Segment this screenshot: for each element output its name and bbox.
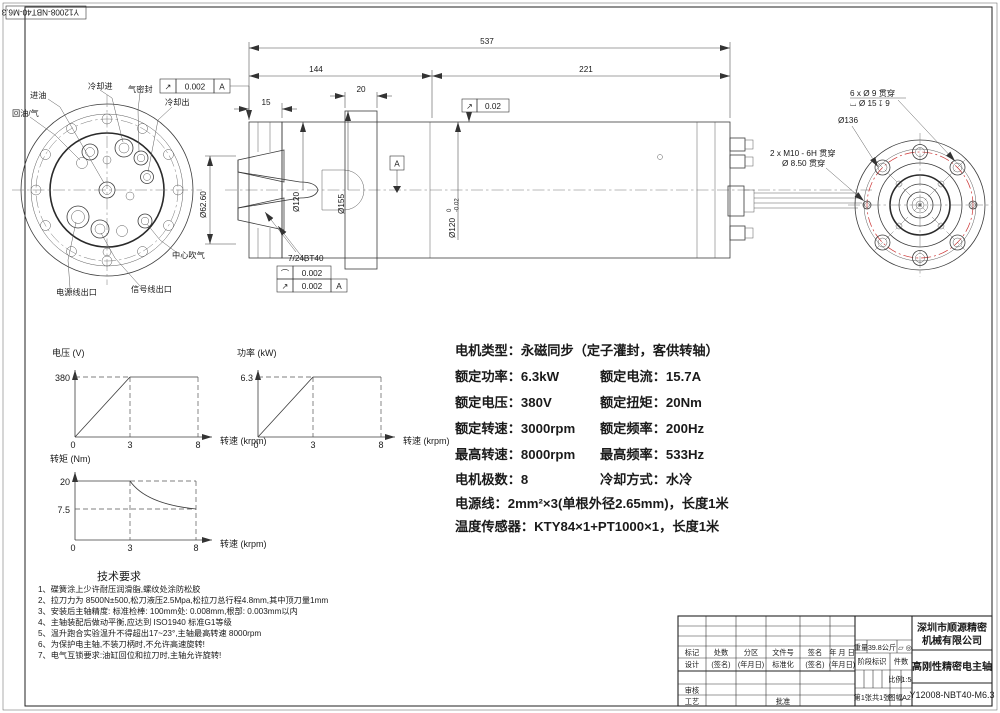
runout2-value: 0.02 (485, 102, 501, 111)
label-bolt-circle: Ø136 (838, 116, 858, 125)
chart2-ypeak: 6.3 (240, 373, 253, 383)
spec-frequency: 额定频率：200Hz (600, 420, 704, 436)
label-air-seal: 气密封 (128, 84, 153, 94)
stage-label: 阶段标识 (858, 657, 887, 666)
chart1-xtick0: 0 (70, 440, 75, 450)
spec-cooling: 冷却方式：水冷 (600, 471, 692, 487)
profile-symbol: ⌒ (281, 269, 289, 278)
front-ports (67, 139, 154, 256)
datum-a-label: A (394, 160, 400, 169)
th-mark: 标记 (685, 648, 699, 657)
dim-body-dia: Ø120 (292, 192, 301, 212)
product-title: 高刚性精密电主轴 (912, 660, 992, 673)
runout-symbol: ↗ (165, 83, 172, 92)
spec-table: 电机类型：永磁同步（定子灌封，客供转轴） 额定功率：6.3kW 额定电流：15.… (455, 342, 730, 534)
torque-chart: 转矩 (Nm) 20 7.5 0 3 8 转速 (krpm) (50, 453, 267, 553)
label-center-air: 中心吹气 (172, 250, 205, 260)
chart3-ytick-75: 7.5 (57, 505, 70, 515)
td-date2: (年月日) (829, 660, 855, 669)
tech-item-2: 2、拉刀力为 8500N±500,松刀液压2.5Mpa,松拉刀总行程4.8mm,… (38, 595, 328, 605)
spec-power: 额定功率：6.3kW (455, 368, 560, 384)
scale-value: 1:5 (902, 675, 912, 684)
projection-symbol: ▱ ◎ (898, 643, 912, 652)
td-date: (年月日) (738, 660, 764, 669)
dim-overall: 537 (480, 37, 494, 46)
label-cbore: ⌴ Ø 15 ↧ 9 (850, 99, 890, 108)
profile-tolerance-frame: ⌒ 0.002 ↗ 0.002 A (277, 266, 347, 292)
weight-label: 重量 (854, 643, 868, 652)
size-label: 图幅 (888, 693, 902, 702)
technical-requirements: 技术要求 1、碟簧涂上少许耐压润滑脂,螺纹处涂防松胶 2、拉刀力为 8500N±… (38, 570, 328, 660)
drawing-number: Y12008-NBT40-M6.3 (909, 690, 994, 700)
voltage-chart: 电压 (V) 380 0 3 8 转速 (krpm) (52, 347, 267, 450)
chart2-xlabel: 转速 (krpm) (403, 435, 450, 446)
title-block-right: 深圳市顺源精密 机械有限公司 高刚性精密电主轴 Y12008-NBT40-M6.… (909, 621, 994, 700)
chart3-xlabel: 转速 (krpm) (220, 538, 267, 549)
spec-sensor: 温度传感器：KTY84×1+PT1000×1，长度1米 (455, 518, 720, 534)
th-date: 年 月 日 (829, 648, 855, 657)
spec-max-speed: 最高转速：8000rpm (455, 446, 575, 462)
th-count: 处数 (714, 648, 728, 657)
tech-item-5: 5、温升跑合实验温升不得超出17~23°,主轴最高转速 8000rpm (38, 628, 261, 638)
label-tapped: 2 x M10 - 6H 贯穿 (770, 148, 836, 158)
chart2-xtick2: 8 (378, 440, 383, 450)
rear-view: 6 x Ø 9 贯穿 ⌴ Ø 15 ↧ 9 Ø136 2 x M10 - 6H … (770, 88, 992, 277)
td-std: 标准化 (772, 660, 794, 669)
fit-tol-upper: 0 (447, 208, 453, 212)
th-zone: 分区 (744, 648, 758, 657)
chart3-xtick0: 0 (70, 543, 75, 553)
spec-max-frequency: 最高频率：533Hz (600, 446, 704, 462)
dim-front: 144 (309, 65, 323, 74)
td-process: 工艺 (685, 697, 699, 706)
label-holes: 6 x Ø 9 贯穿 (850, 88, 895, 98)
qty-label: 件数 (894, 657, 908, 666)
fit-tol-lower: -0.02 (455, 198, 461, 212)
tech-item-1: 1、碟簧涂上少许耐压润滑脂,螺纹处涂防松胶 (38, 584, 200, 594)
chart3-xtick2: 8 (193, 543, 198, 553)
rear-view-labels: 6 x Ø 9 贯穿 ⌴ Ø 15 ↧ 9 Ø136 2 x M10 - 6H … (770, 88, 955, 201)
label-coolant-in: 冷却进 (88, 81, 113, 91)
chart2-xtick1: 3 (310, 440, 315, 450)
chart1-xtick1: 3 (127, 440, 132, 450)
profile-runout-value: 0.002 (302, 282, 323, 291)
spec-power-cable: 电源线：2mm²×3(单根外径2.65mm)，长度1米 (455, 495, 730, 511)
chart3-ylabel: 转矩 (Nm) (50, 453, 91, 464)
dim-nose: 15 (261, 98, 271, 107)
title-block: 标记 处数 分区 文件号 签名 年 月 日 设计 (签名) (年月日) 标准化 … (678, 616, 995, 706)
spec-current: 额定电流：15.7A (600, 368, 702, 384)
fit-dia: Ø120 (448, 218, 457, 238)
label-oil-in: 进油 (30, 90, 46, 100)
chart3-ytick-20: 20 (60, 477, 70, 487)
label-signal-outlet: 信号线出口 (131, 284, 172, 294)
side-view-dimensions: 537 144 221 20 15 Ø62.60 Ø120 Ø155 (199, 37, 730, 292)
td-sign: (签名) (711, 660, 730, 669)
chart2-ylabel: 功率 (kW) (237, 347, 277, 358)
taper-spec-label: 7/24BT40 (288, 254, 324, 263)
chart1-ypeak: 380 (55, 373, 70, 383)
spec-type: 电机类型：永磁同步（定子灌封，客供转轴） (455, 342, 719, 358)
side-view: 537 144 221 20 15 Ø62.60 Ø120 Ø155 (199, 37, 872, 292)
dim-rear: 221 (579, 65, 593, 74)
tech-title: 技术要求 (97, 570, 141, 583)
dim-taper-dia: Ø62.60 (199, 191, 208, 218)
runout-value: 0.002 (185, 83, 206, 92)
chart1-ylabel: 电压 (V) (52, 347, 85, 358)
drawing-canvas: Y12008-NBT40-M6.3 (0, 0, 1000, 713)
company-name-line1: 深圳市顺源精密 (917, 621, 987, 634)
td-review: 审核 (685, 686, 699, 695)
title-block-middle-grid: 重量 39.8公斤 ▱ ◎ 阶段标识 件数 比例 1:5 第1张共1张 图幅 A… (854, 640, 912, 706)
chart3-xtick1: 3 (127, 543, 132, 553)
th-sign: 签名 (808, 648, 822, 657)
company-name-line2: 机械有限公司 (922, 634, 982, 647)
sheet-count: 第1张共1张 (854, 693, 891, 702)
tech-item-7: 7、电气互锁要求:油缸回位和拉刀时,主轴允许旋转! (38, 650, 221, 660)
runout-datum: A (219, 83, 225, 92)
profile-runout-datum: A (336, 282, 342, 291)
power-chart: 功率 (kW) 6.3 0 3 8 转速 (krpm) (237, 347, 450, 450)
weight-value: 39.8公斤 (868, 643, 896, 652)
profile-runout-symbol: ↗ (282, 282, 289, 291)
label-through: Ø 8.50 贯穿 (782, 158, 825, 168)
td-approve: 批准 (776, 697, 790, 706)
td-design: 设计 (685, 660, 699, 669)
engineering-drawing-sheet: { "corner_label": "Y12008-NBT40-M6.3", "… (0, 0, 1000, 713)
th-doc: 文件号 (772, 648, 794, 657)
dim-flange-width: 20 (356, 85, 366, 94)
spec-poles: 电机极数：8 (455, 471, 528, 487)
chart2-xtick0: 0 (253, 440, 258, 450)
spec-torque: 额定扭矩：20Nm (600, 394, 702, 410)
tech-item-6: 6、为保护电主轴,不装刀柄时,不允许高速旋转! (38, 639, 205, 649)
spec-rated-speed: 额定转速：3000rpm (455, 420, 575, 436)
profile-value: 0.002 (302, 269, 323, 278)
td-sign2: (签名) (805, 660, 824, 669)
label-coolant-out: 冷却出 (165, 97, 190, 107)
dim-flange-dia: Ø155 (337, 194, 346, 214)
performance-charts: 电压 (V) 380 0 3 8 转速 (krpm) 功率 (kW) 6.3 0… (50, 347, 450, 553)
label-power-outlet: 电源线出口 (56, 287, 97, 297)
title-block-left-grid: 标记 处数 分区 文件号 签名 年 月 日 设计 (签名) (年月日) 标准化 … (678, 616, 855, 706)
tech-item-3: 3、安装后主轴精度: 标准检棒: 100mm处: 0.008mm,根部: 0.0… (38, 606, 298, 616)
front-view: 进油 冷却进 气密封 冷却出 回油/气 中心吹气 电源线出口 信号线出口 ↗ 0… (12, 79, 249, 297)
tech-item-4: 4、主轴装配后做动平衡,应达到 ISO1940 标准G1等级 (38, 617, 232, 627)
corner-part-number: Y12008-NBT40-M6.3 (1, 8, 79, 17)
runout2-symbol: ↗ (466, 102, 473, 111)
spec-voltage: 额定电压：380V (455, 394, 552, 410)
chart1-xtick2: 8 (195, 440, 200, 450)
label-oil-return: 回油/气 (12, 108, 39, 118)
